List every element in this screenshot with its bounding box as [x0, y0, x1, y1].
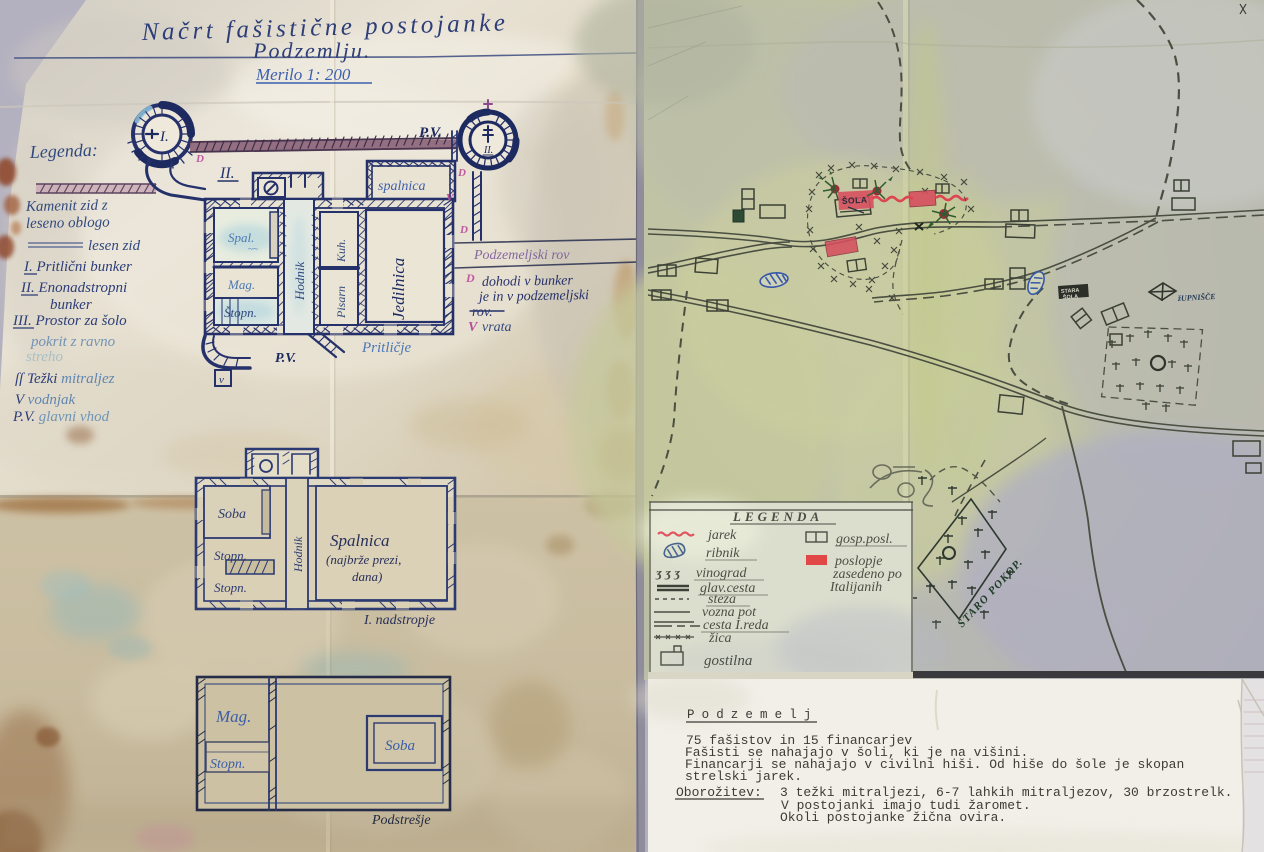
svg-text:I.: I. — [159, 129, 169, 145]
svg-text:Jedilnica: Jedilnica — [389, 258, 408, 320]
svg-text:jarek: jarek — [706, 528, 737, 543]
svg-text:I. nadstropje: I. nadstropje — [363, 613, 435, 628]
svg-text:~~: ~~ — [248, 244, 258, 254]
svg-text:žica: žica — [708, 631, 732, 646]
svg-text:Okoli postojanke žična ovira.: Okoli postojanke žična ovira. — [780, 810, 1006, 825]
svg-text:Štopn.: Štopn. — [224, 305, 257, 320]
svg-text:ʒʒʒ: ʒʒʒ — [655, 565, 683, 580]
svg-text:D: D — [195, 153, 204, 165]
svg-text:gostilna: gostilna — [704, 653, 752, 669]
svg-text:D: D — [459, 224, 468, 236]
svg-text:Kamenit zid z: Kamenit zid z — [25, 198, 108, 215]
svg-text:lesen zid: lesen zid — [88, 238, 141, 254]
svg-text:LEGENDA: LEGENDA — [732, 509, 823, 524]
svg-text:Podzemelj: Podzemelj — [687, 708, 818, 722]
svg-text:(najbrže prezi,: (najbrže prezi, — [326, 552, 401, 567]
svg-text:Spal.: Spal. — [228, 230, 254, 245]
svg-text:bunker: bunker — [50, 297, 92, 313]
svg-text:Merilo 1: 200: Merilo 1: 200 — [255, 65, 351, 84]
svg-text:žUPNIŠČE: žUPNIŠČE — [1177, 291, 1216, 303]
svg-text:spalnica: spalnica — [378, 179, 425, 194]
svg-text:Spalnica: Spalnica — [330, 531, 390, 550]
svg-text:pokrit z ravno: pokrit z ravno — [30, 334, 116, 350]
svg-text:Stopn.: Stopn. — [214, 548, 247, 563]
svg-text:vrata: vrata — [482, 320, 512, 335]
svg-text:Podzemlju.: Podzemlju. — [252, 38, 371, 63]
svg-text:streho: streho — [26, 349, 63, 365]
svg-text:Mag.: Mag. — [227, 277, 255, 292]
svg-text:II. Enonadstropni: II. Enonadstropni — [20, 280, 127, 296]
svg-text:je in v podzemeljski: je in v podzemeljski — [477, 288, 589, 305]
svg-text:Stopn.: Stopn. — [210, 757, 245, 772]
svg-text:Podstrešje: Podstrešje — [371, 813, 431, 828]
svg-text:Pisarn: Pisarn — [334, 286, 348, 319]
svg-text:P.V. glavni vhod: P.V. glavni vhod — [12, 409, 110, 425]
svg-text:II.: II. — [219, 165, 235, 182]
svg-text:Kuh.: Kuh. — [334, 239, 348, 263]
svg-text:D: D — [457, 167, 466, 179]
svg-text:V vodnjak: V vodnjak — [15, 392, 75, 408]
svg-text:Legenda:: Legenda: — [28, 140, 98, 162]
svg-text:rov.: rov. — [472, 305, 493, 320]
svg-text:Oborožitev:: Oborožitev: — [676, 785, 762, 800]
svg-text:Soba: Soba — [385, 738, 415, 754]
svg-text:ŠOLA: ŠOLA — [842, 194, 868, 206]
svg-text:Soba: Soba — [218, 507, 246, 522]
svg-text:leseno oblogo: leseno oblogo — [26, 215, 111, 232]
svg-text:gosp.posl.: gosp.posl. — [836, 532, 893, 547]
svg-text:D: D — [465, 271, 475, 285]
svg-text:Hodnik: Hodnik — [292, 262, 307, 302]
svg-text:Hodnik: Hodnik — [291, 536, 305, 573]
svg-text:Podzemeljski rov: Podzemeljski rov — [473, 248, 570, 263]
svg-text:III. Prostor za šolo: III. Prostor za šolo — [12, 313, 127, 329]
svg-text:dana): dana) — [352, 569, 382, 584]
svg-text:v: v — [219, 374, 224, 386]
svg-text:II.: II. — [483, 145, 493, 156]
svg-text:Italijanih: Italijanih — [829, 580, 882, 595]
svg-text:vinograd: vinograd — [696, 566, 748, 581]
svg-text:ſſ Težki mitraljez: ſſ Težki mitraljez — [15, 371, 115, 387]
svg-text:strelski jarek.: strelski jarek. — [685, 769, 802, 784]
svg-text:Mag.: Mag. — [215, 707, 251, 726]
svg-text:dohodi v bunker: dohodi v bunker — [482, 273, 574, 290]
svg-text:P.V.: P.V. — [419, 125, 442, 141]
svg-text:Pritličje: Pritličje — [361, 340, 411, 356]
svg-text:I. Pritlični bunker: I. Pritlični bunker — [23, 259, 132, 275]
svg-text:P.V.: P.V. — [275, 351, 296, 366]
svg-text:Stopn.: Stopn. — [214, 580, 247, 595]
svg-text:ribnik: ribnik — [706, 546, 740, 561]
